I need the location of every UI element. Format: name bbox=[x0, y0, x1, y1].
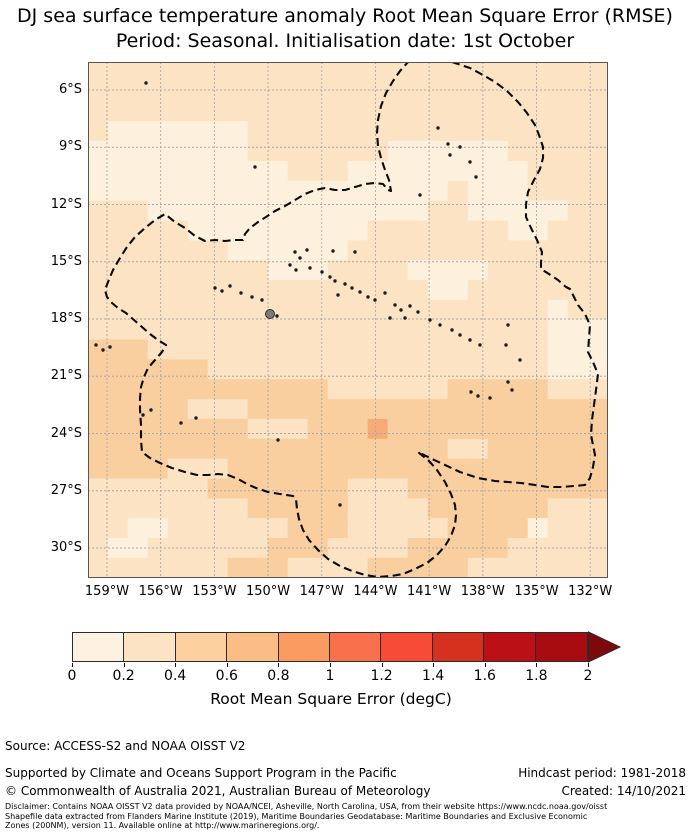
colorbar-segment bbox=[279, 633, 330, 661]
colorbar-tick-mark bbox=[124, 663, 125, 667]
colorbar-segment bbox=[176, 633, 227, 661]
colorbar-tick-label: 2 bbox=[566, 668, 610, 684]
colorbar-tick-label: 0.8 bbox=[256, 668, 300, 684]
colorbar-tick-label: 1 bbox=[308, 668, 352, 684]
y-axis-label: 21°S bbox=[0, 367, 82, 385]
colorbar-tick-mark bbox=[175, 663, 176, 667]
y-axis-label: 30°S bbox=[0, 539, 82, 557]
colorbar-segment bbox=[73, 633, 124, 661]
colorbar-tick-mark bbox=[382, 663, 383, 667]
y-axis-label: 27°S bbox=[0, 482, 82, 500]
colorbar-tick-mark bbox=[330, 663, 331, 667]
colorbar-segment bbox=[433, 633, 484, 661]
colorbar-tick-mark bbox=[588, 663, 589, 667]
colorbar-segment bbox=[381, 633, 432, 661]
colorbar-tick-mark bbox=[227, 663, 228, 667]
colorbar-tick-label: 0 bbox=[50, 668, 94, 684]
hindcast-period: Hindcast period: 1981-2018 bbox=[518, 766, 686, 780]
colorbar-extend-arrow bbox=[588, 631, 622, 663]
colorbar-tick-label: 1.4 bbox=[411, 668, 455, 684]
colorbar-tick-label: 0.4 bbox=[153, 668, 197, 684]
disclaimer: Disclaimer: Contains NOAA OISST V2 data … bbox=[5, 802, 690, 831]
sst-rmse-heatmap bbox=[88, 62, 608, 578]
supported-line: Supported by Climate and Oceans Support … bbox=[5, 766, 397, 780]
colorbar-tick-mark bbox=[485, 663, 486, 667]
y-axis-label: 24°S bbox=[0, 425, 82, 443]
colorbar bbox=[72, 632, 588, 662]
disclaimer-line: Shapefile data extracted from Flanders M… bbox=[5, 812, 690, 822]
source-line: Source: ACCESS-S2 and NOAA OISST V2 bbox=[5, 739, 245, 753]
colorbar-segment bbox=[536, 633, 587, 661]
colorbar-segment bbox=[227, 633, 278, 661]
colorbar-tick-mark bbox=[433, 663, 434, 667]
colorbar-segment bbox=[330, 633, 381, 661]
disclaimer-line: Zones (200NM), version 11. Available onl… bbox=[5, 821, 690, 831]
figure-root: { "title": { "line1": "DJ sea surface te… bbox=[0, 0, 690, 839]
figure-title-block: DJ sea surface temperature anomaly Root … bbox=[0, 0, 690, 58]
y-axis-label: 12°S bbox=[0, 196, 82, 214]
colorbar-tick-label: 1.2 bbox=[360, 668, 404, 684]
copyright-line: © Commonwealth of Australia 2021, Austra… bbox=[5, 784, 430, 798]
map-plot-area bbox=[88, 62, 608, 578]
colorbar-tick-label: 1.8 bbox=[514, 668, 558, 684]
colorbar-tick-label: 0.6 bbox=[205, 668, 249, 684]
colorbar-label: Root Mean Square Error (degC) bbox=[73, 690, 589, 708]
colorbar-tick-label: 0.2 bbox=[102, 668, 146, 684]
page-title: DJ sea surface temperature anomaly Root … bbox=[17, 5, 673, 27]
colorbar-tick-mark bbox=[536, 663, 537, 667]
disclaimer-line: Disclaimer: Contains NOAA OISST V2 data … bbox=[5, 802, 690, 812]
created-date: Created: 14/10/2021 bbox=[561, 784, 686, 798]
colorbar-segment bbox=[484, 633, 535, 661]
y-axis-label: 18°S bbox=[0, 310, 82, 328]
colorbar-segment bbox=[124, 633, 175, 661]
y-axis-label: 6°S bbox=[0, 81, 82, 99]
y-axis-label: 15°S bbox=[0, 253, 82, 271]
heatmap-cells bbox=[88, 62, 608, 578]
colorbar-tick-mark bbox=[278, 663, 279, 667]
main-island-dot bbox=[266, 310, 275, 319]
x-axis-label: 132°W bbox=[558, 584, 622, 599]
y-axis-label: 9°S bbox=[0, 138, 82, 156]
page-subtitle: Period: Seasonal. Initialisation date: 1… bbox=[0, 30, 690, 52]
colorbar-tick-label: 1.6 bbox=[463, 668, 507, 684]
colorbar-tick-mark bbox=[72, 663, 73, 667]
